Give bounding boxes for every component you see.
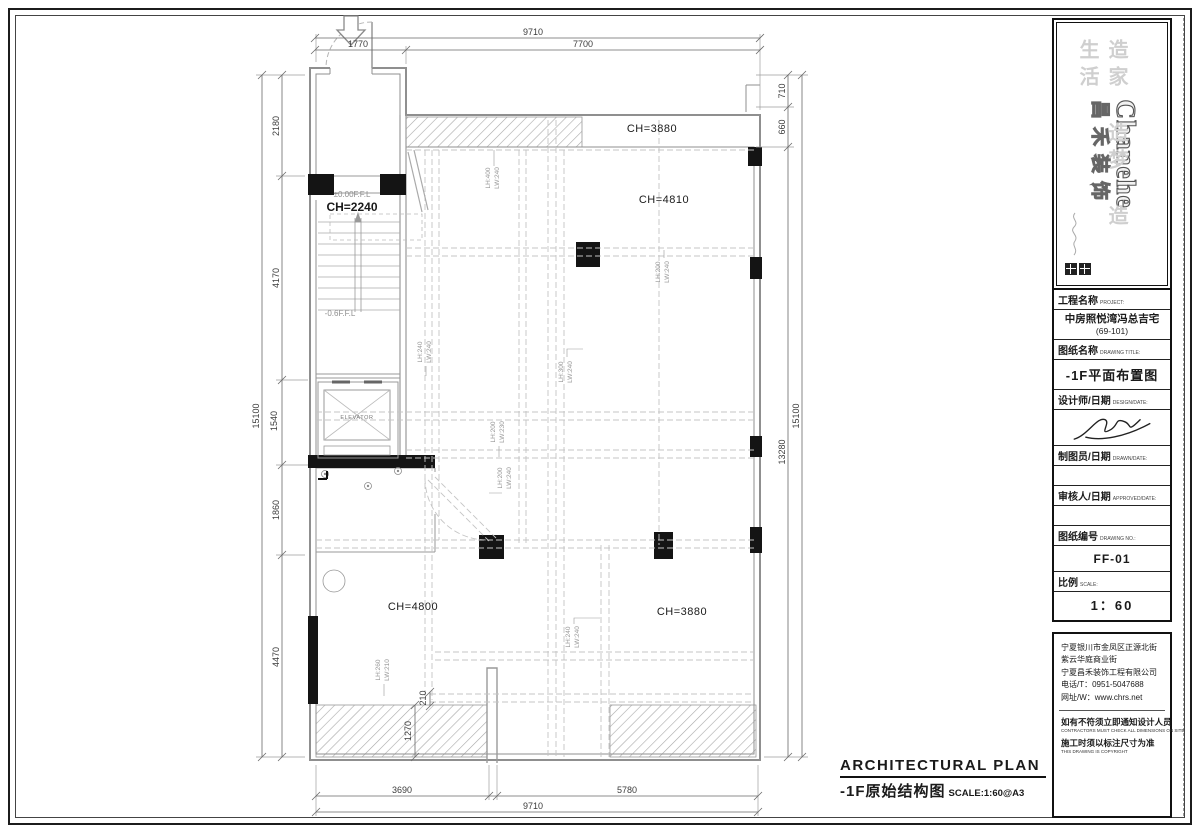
dim-top-seg2: 7700 — [573, 39, 593, 49]
address-box: 宁夏银川市金凤区正源北街 紫云华庭商业街 宁夏昌禾装饰工程有限公司 电话/T：0… — [1052, 632, 1172, 818]
project-unit: (69-101) — [1096, 326, 1128, 336]
ceiling-height-bottom: CH=3880 — [657, 606, 707, 618]
beam-label-lh: LH:200 — [655, 261, 662, 282]
project-value-row: 中房照悦湾冯总吉宅 (69-101) — [1054, 310, 1170, 340]
ffl-zero-label: ±0.00F.F.L — [334, 190, 371, 199]
ceiling-height-left: CH=4800 — [388, 601, 438, 613]
scale-label-row: 比例 SCALE: — [1054, 572, 1170, 592]
dim-inner-210: 210 — [418, 690, 428, 705]
address-line1: 宁夏银川市金凤区正源北街 — [1061, 642, 1163, 654]
extension-lines — [256, 34, 808, 816]
dim-left-seg5: 4470 — [271, 647, 281, 667]
dim-left-seg3: 1540 — [269, 411, 279, 431]
notice-2-en: THIS DRAWING IS COPYRIGHT — [1061, 749, 1163, 754]
scale-value: 1：60 — [1091, 595, 1134, 614]
beam-label-lw: LW:230 — [499, 421, 506, 443]
columns — [308, 147, 762, 704]
beam-label-lw: LW:240 — [664, 261, 671, 283]
scale-label: 比例 — [1058, 574, 1078, 589]
project-label-en: PROJECT: — [1100, 300, 1124, 307]
dim-bottom-seg1: 3690 — [392, 785, 412, 795]
storage-room-details — [318, 468, 402, 593]
dim-inner-1270: 1270 — [403, 721, 413, 741]
beam-label-lh: LH:260 — [375, 659, 382, 680]
company-phone: 电话/T：0951-5047688 — [1061, 679, 1163, 691]
address-line2: 紫云华庭商业街 — [1061, 654, 1163, 666]
notice-1: 如有不符须立即通知设计人员 — [1061, 716, 1163, 728]
drafter-label: 制图员/日期 — [1058, 448, 1111, 463]
designer-label: 设计师/日期 — [1058, 392, 1111, 407]
beam-label-lw: LW:240 — [567, 361, 574, 383]
hatched-walls — [316, 117, 756, 757]
title-block: 工程名称 PROJECT: 中房照悦湾冯总吉宅 (69-101) 图纸名称 DR… — [1052, 288, 1172, 622]
ffl-minus-label: -0.6F.F.L — [325, 309, 356, 318]
beam-label-lh: LH:300 — [558, 361, 565, 382]
beam-label-lh: LH:200 — [497, 467, 504, 488]
drafter-label-row: 制图员/日期 DRAWN/DATE: — [1054, 446, 1170, 466]
dim-top-total: 9710 — [523, 27, 543, 37]
dimension-lines — [258, 34, 806, 816]
number-label-row: 图纸编号 DRAWING NO.: — [1054, 526, 1170, 546]
project-label-row: 工程名称 PROJECT: — [1054, 290, 1170, 310]
designer-label-en: DESIGN/DATE: — [1113, 400, 1148, 407]
dim-top-seg1: 1770 — [348, 39, 368, 49]
title-panel: Chanehe 昌禾装饰 造家 造梦 造生活 工程名称 PROJECT: 中房照… — [1052, 16, 1174, 818]
room-labels: CH=3880 CH=4810 ±0.00F.F.L CH=2240 -0.6F… — [325, 123, 707, 618]
approver-value-row — [1054, 506, 1170, 526]
beam-label-lw: LW:240 — [506, 467, 513, 489]
drawing-sheet: ELEVATOR — [0, 0, 1200, 833]
approver-label-en: APPROVED/DATE: — [1113, 496, 1157, 503]
ceiling-height-stair: CH=2240 — [326, 200, 377, 214]
address-divider — [1059, 710, 1165, 711]
designer-label-row: 设计师/日期 DESIGN/DATE: — [1054, 390, 1170, 410]
seal-stamp — [1065, 263, 1077, 275]
outer-walls — [310, 68, 760, 760]
beam-label-lw: LW:240 — [494, 167, 501, 189]
approver-label-row: 审核人/日期 APPROVED/DATE: — [1054, 486, 1170, 506]
project-label: 工程名称 — [1058, 292, 1098, 307]
logo-box: Chanehe 昌禾装饰 造家 造梦 造生活 — [1052, 18, 1172, 290]
drawing-title-block: ARCHITECTURAL PLAN -1F原始结构图 SCALE:1:60@A… — [840, 757, 1046, 801]
dim-left-seg1: 2180 — [271, 116, 281, 136]
seal-stamp — [1079, 263, 1091, 275]
dim-right-seg3: 13280 — [777, 439, 787, 464]
beam-leaders — [384, 150, 664, 696]
dim-right-seg1: 710 — [777, 83, 787, 98]
number-value-row: FF-01 — [1054, 546, 1170, 572]
logo-box-inner: Chanehe 昌禾装饰 造家 造梦 造生活 — [1056, 22, 1168, 286]
dim-right-total: 15100 — [791, 403, 801, 428]
dim-bottom-total: 9710 — [523, 801, 543, 811]
dim-left-seg2: 4170 — [271, 268, 281, 288]
drafter-value-row — [1054, 466, 1170, 486]
drawing-label-en: DRAWING TITLE: — [1100, 350, 1140, 357]
designer-signature — [1067, 412, 1157, 443]
dim-left-total: 15100 — [251, 403, 261, 428]
scale-value-row: 1：60 — [1054, 592, 1170, 616]
sheet-fold-line — [1183, 18, 1184, 816]
beam-label-lh: LH:200 — [490, 421, 497, 442]
beam-label-lh: LH:240 — [565, 626, 572, 647]
approver-label: 审核人/日期 — [1058, 488, 1111, 503]
drawing-label: 图纸名称 — [1058, 342, 1098, 357]
drawing-number: FF-01 — [1093, 552, 1130, 566]
beam-labels: LH:400 LW:240 LH:200 LW:240 LH:240 LW:24… — [375, 150, 671, 696]
designer-signature-row — [1054, 410, 1170, 446]
drawing-value-row: -1F平面布置图 — [1054, 360, 1170, 390]
beam-label-lw: LW:210 — [384, 659, 391, 681]
notice-2: 施工时须以标注尺寸为准 — [1061, 737, 1163, 749]
number-label-en: DRAWING NO.: — [1100, 536, 1136, 543]
company-website: 网址/W：www.chrs.net — [1061, 692, 1163, 704]
beam-label-lw: LW:240 — [574, 626, 581, 648]
calligraphy-mark — [1067, 211, 1083, 257]
beam-label-lw: LW:240 — [426, 341, 433, 363]
number-label: 图纸编号 — [1058, 528, 1098, 543]
seal-stamps — [1065, 263, 1091, 275]
drawing-label-row: 图纸名称 DRAWING TITLE: — [1054, 340, 1170, 360]
dim-bottom-seg2: 5780 — [617, 785, 637, 795]
drafter-label-en: DRAWN/DATE: — [1113, 456, 1147, 463]
drawing-title-cn: -1F原始结构图 — [840, 780, 946, 801]
drawing-title-en: ARCHITECTURAL PLAN — [840, 757, 1046, 778]
floor-plan: ELEVATOR — [0, 0, 1040, 833]
dim-left-seg4: 1860 — [271, 500, 281, 520]
beam-label-lh: LH:400 — [485, 167, 492, 188]
company-name: 宁夏昌禾装饰工程有限公司 — [1061, 667, 1163, 679]
drawing-name: -1F平面布置图 — [1066, 365, 1159, 384]
notice-1-en: CONTRACTORS MUST CHECK ALL DIMENSIONS ON… — [1061, 728, 1163, 733]
dim-right-seg2: 660 — [777, 119, 787, 134]
drawing-title-scale: SCALE:1:60@A3 — [949, 788, 1025, 799]
project-name: 中房照悦湾冯总吉宅 — [1065, 313, 1160, 326]
scale-label-en: SCALE: — [1080, 582, 1098, 589]
beam-label-lh: LH:240 — [417, 341, 424, 362]
ceiling-height-top: CH=3880 — [627, 123, 677, 135]
ceiling-height-main: CH=4810 — [639, 194, 689, 206]
